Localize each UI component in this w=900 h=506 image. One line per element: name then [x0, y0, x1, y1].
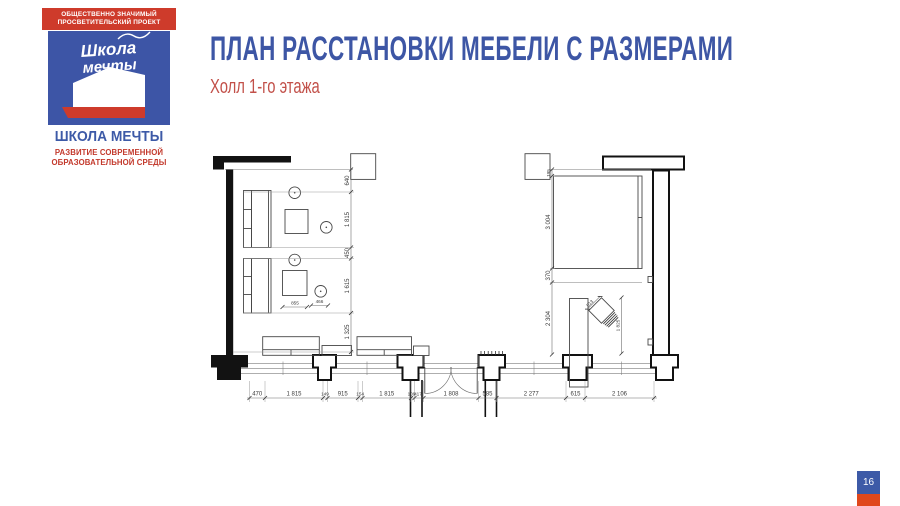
- piers: [211, 355, 678, 380]
- dim-label: 855: [291, 301, 299, 306]
- pier: [479, 355, 506, 380]
- lounge-furniture: [244, 187, 333, 313]
- radiator-ticks: [481, 351, 503, 355]
- dim-label: 450: [345, 247, 351, 258]
- wall-tab: [648, 339, 653, 345]
- dim-label: 915: [338, 392, 349, 398]
- dim-label: 1 815: [286, 392, 302, 398]
- entrance-door: [424, 356, 479, 394]
- dim-label: 370: [546, 270, 552, 281]
- logo-house-icon: [48, 31, 170, 125]
- dim-label: 3 004: [546, 214, 552, 230]
- dim-label: 149: [321, 392, 329, 397]
- coffee-table: [285, 210, 308, 234]
- page-number: 16: [857, 471, 880, 494]
- logo-header-line2: ПРОСВЕТИТЕЛЬСКИЙ ПРОЕКТ: [42, 19, 176, 27]
- logo-tagline: РАЗВИТИЕ СОВРЕМЕННОЙ ОБРАЗОВАТЕЛЬНОЙ СРЕ…: [38, 148, 180, 168]
- dim-label: 2 277: [524, 392, 540, 398]
- door-swing-arc: [451, 367, 478, 394]
- pier-corner-right: [651, 355, 678, 380]
- sofa-back: [244, 259, 252, 314]
- page-subtitle: Холл 1-го этажа: [210, 76, 320, 99]
- stage-platform: [554, 176, 643, 269]
- dim-label: 470: [252, 392, 263, 398]
- page-title: ПЛАН РАССТАНОВКИ МЕБЕЛИ С РАЗМЕРАМИ: [210, 30, 733, 69]
- column-square-left: [351, 154, 376, 180]
- dim-label: 417: [414, 392, 422, 397]
- dim-label: 2 106: [612, 392, 628, 398]
- dim-label: 1 815: [345, 211, 351, 227]
- slide: ОБЩЕСТВЕННО ЗНАЧИМЫЙ ПРОСВЕТИТЕЛЬСКИЙ ПР…: [0, 0, 900, 506]
- dim-label: 195: [546, 169, 551, 177]
- pier: [398, 355, 424, 380]
- dim-label: 1 325: [345, 324, 351, 340]
- logo-house-body: [73, 67, 145, 107]
- dim-label: 1 815: [379, 392, 395, 398]
- wall-tab: [648, 277, 653, 283]
- dim-label: 585: [482, 392, 493, 398]
- logo-emblem: Школа мечты: [48, 31, 170, 125]
- side-table: [414, 346, 430, 356]
- window-wall: [223, 362, 663, 376]
- door-swing-arc: [425, 367, 452, 394]
- dim-label: 640: [345, 175, 351, 186]
- logo-header-line1: ОБЩЕСТВЕННО ЗНАЧИМЫЙ: [42, 11, 176, 19]
- detached-columns: [351, 154, 550, 180]
- logo-flourish: [118, 32, 150, 39]
- dim-label: 615: [570, 392, 581, 398]
- dim-label: 1 615: [345, 278, 351, 294]
- page-badge-accent: [857, 494, 880, 506]
- dim-label: 1 808: [443, 392, 459, 398]
- dim-furniture: 855 466: [281, 299, 331, 309]
- wall-top-right: [603, 157, 684, 170]
- coffee-table: [283, 271, 308, 296]
- logo-tagline-line1: РАЗВИТИЕ СОВРЕМЕННОЙ: [38, 148, 180, 158]
- dim-label: 2 304: [546, 310, 552, 326]
- wall-right: [653, 171, 669, 356]
- pier: [313, 355, 336, 380]
- dim-chain-bottom: 470 1 815 149 915 154 1 815 109 417 1 80…: [247, 381, 657, 402]
- dim-label: 1 825: [615, 319, 620, 331]
- logo-header-banner: ОБЩЕСТВЕННО ЗНАЧИМЫЙ ПРОСВЕТИТЕЛЬСКИЙ ПР…: [42, 8, 176, 30]
- wall-left: [226, 170, 233, 356]
- walls: [213, 156, 684, 355]
- logo-name: ШКОЛА МЕЧТЫ: [47, 128, 170, 145]
- logo-house-base: [62, 107, 145, 118]
- floor-plan: 640 1 815 450 1 615 1 325 195 3 004 370 …: [205, 140, 685, 430]
- sofa-back: [244, 191, 252, 248]
- wall-top-left: [213, 156, 291, 170]
- dim-label: 466: [316, 299, 324, 304]
- pier-corner-left: [211, 355, 248, 380]
- page-number-badge: 16: [857, 471, 880, 506]
- dim-label: 154: [356, 392, 364, 397]
- logo-tagline-line2: ОБРАЗОВАТЕЛЬНОЙ СРЕДЫ: [38, 158, 180, 168]
